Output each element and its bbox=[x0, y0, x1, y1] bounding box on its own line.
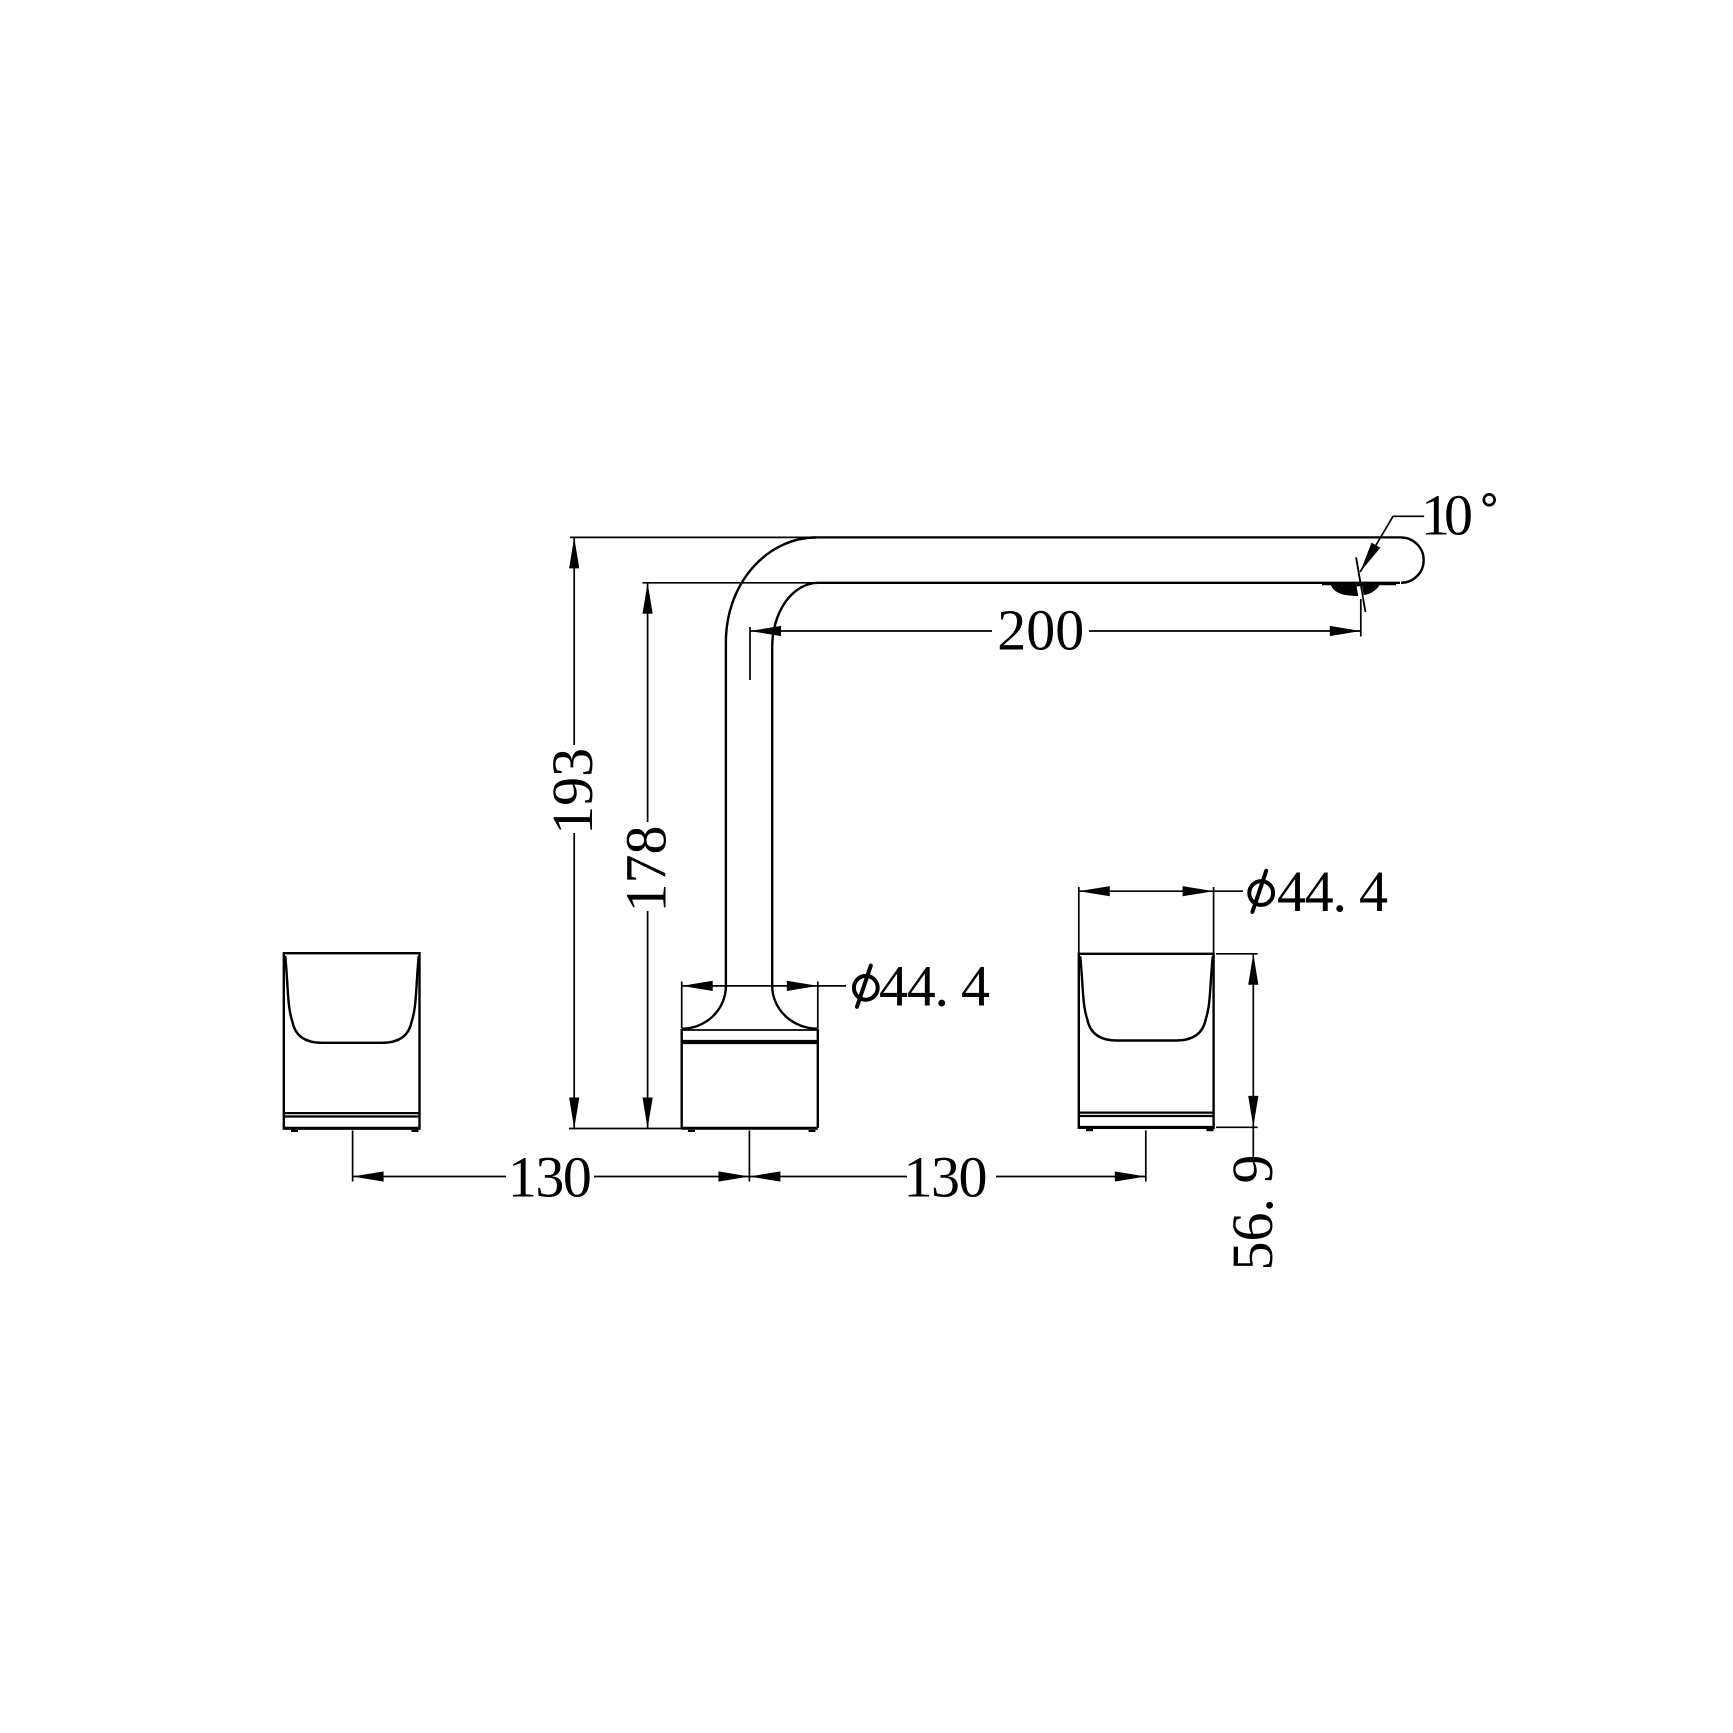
svg-text:178: 178 bbox=[614, 826, 679, 913]
svg-text:193: 193 bbox=[540, 748, 605, 835]
svg-text:200: 200 bbox=[997, 598, 1084, 663]
svg-text:130: 130 bbox=[904, 1145, 988, 1210]
svg-text:130: 130 bbox=[508, 1145, 592, 1210]
svg-text:10: 10 bbox=[1421, 483, 1473, 548]
svg-text:56. 9: 56. 9 bbox=[1220, 1155, 1285, 1271]
svg-text:44. 4: 44. 4 bbox=[1277, 859, 1388, 924]
svg-text:44. 4: 44. 4 bbox=[879, 954, 990, 1019]
